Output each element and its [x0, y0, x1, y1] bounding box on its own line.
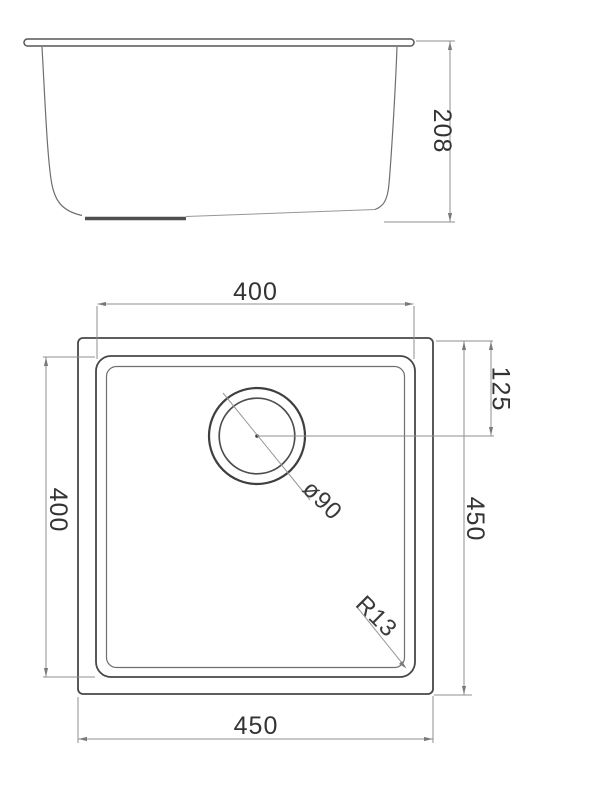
dim-450-right-label: 450 [461, 497, 489, 542]
dim-400-left-label: 400 [44, 488, 72, 533]
dim-400-left-arrow-up [44, 358, 48, 367]
dim-208-arrow-up [448, 42, 452, 51]
side-view-right-wall [375, 47, 397, 210]
dim-208-label: 208 [428, 109, 456, 154]
dim-450-bottom-arrow-left [79, 737, 88, 741]
dim-125-label: 125 [487, 367, 515, 412]
side-view-rim [24, 39, 414, 46]
dim-450-right-arrow-down [462, 686, 466, 695]
side-view: 208 [24, 39, 456, 222]
drain-diameter-label: ø90 [297, 475, 347, 525]
plan-bowl-outer-rect [96, 356, 415, 677]
side-view-bottom-edge [186, 210, 375, 217]
r13-label: R13 [350, 591, 402, 643]
plan-outer-rect [78, 338, 433, 694]
side-view-left-wall [42, 47, 82, 216]
dim-400-top-arrow-left [98, 302, 107, 306]
dim-450-bottom-label: 450 [234, 712, 279, 740]
plan-bowl-inner-rect [107, 367, 405, 668]
dim-400-top-label: 400 [233, 278, 278, 306]
dim-450-bottom: 450 [78, 696, 433, 743]
dim-450-right: 450 [434, 341, 493, 695]
sink-dimension-drawing: 208 ø90 R13 400 [0, 0, 605, 800]
dim-400-top-arrow-right [405, 302, 414, 306]
dim-125-arrow-down [489, 427, 493, 436]
dim-400-left-arrow-down [44, 668, 48, 677]
callout-r13: R13 [350, 591, 406, 669]
dim-208-arrow-down [448, 213, 452, 222]
dim-400-top: 400 [97, 278, 414, 359]
plan-view: ø90 R13 400 400 [43, 278, 515, 743]
dim-125-arrow-up [489, 342, 493, 351]
dim-208: 208 [384, 41, 456, 222]
dim-400-left: 400 [43, 357, 95, 677]
dim-450-bottom-arrow-right [424, 737, 433, 741]
technical-drawing-canvas: 208 ø90 R13 400 [0, 0, 605, 800]
dim-450-right-arrow-up [462, 342, 466, 351]
